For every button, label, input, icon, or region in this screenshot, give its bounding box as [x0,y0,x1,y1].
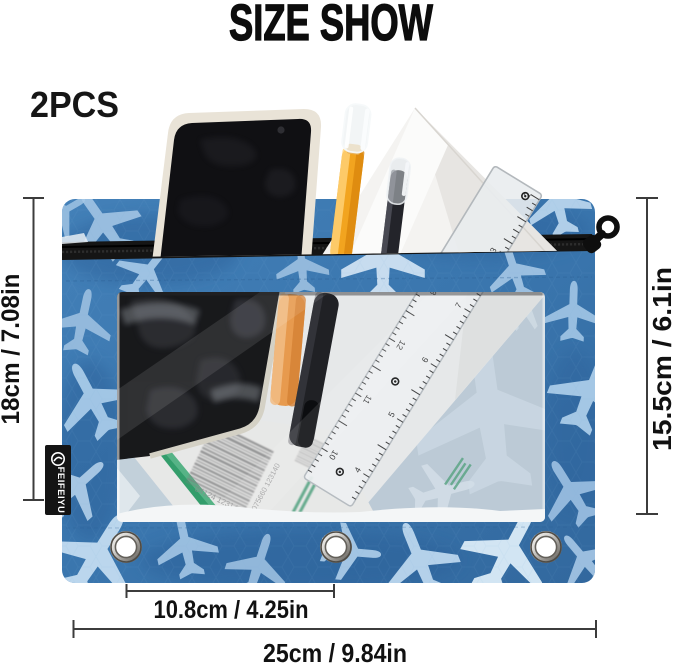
svg-text:FEIFEIYU: FEIFEIYU [55,467,66,514]
svg-text:25cm / 9.84in: 25cm / 9.84in [263,638,407,665]
svg-text:2PCS: 2PCS [30,84,119,125]
svg-text:18cm / 7.08in: 18cm / 7.08in [0,274,25,425]
svg-text:10.8cm / 4.25in: 10.8cm / 4.25in [154,596,309,624]
svg-text:SIZE SHOW: SIZE SHOW [229,0,434,51]
svg-text:15.5cm / 6.1in: 15.5cm / 6.1in [647,267,677,451]
